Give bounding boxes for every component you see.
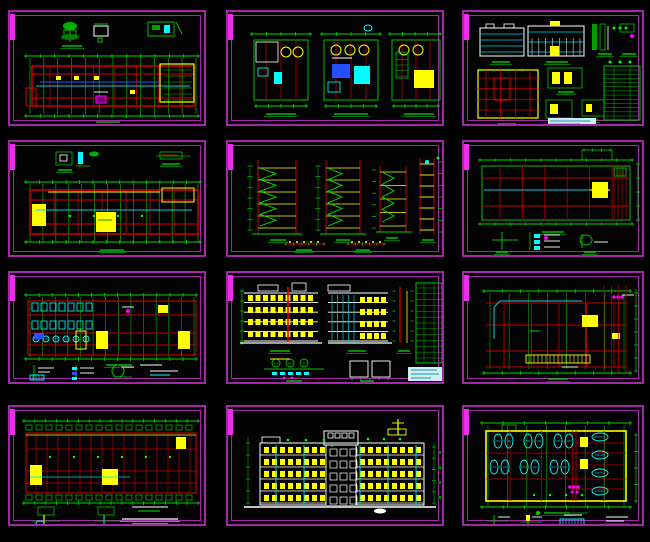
- sheet-drawing-canvas: [464, 142, 642, 255]
- sheet-drawing-canvas: [10, 407, 204, 524]
- sheet-corner-marker: [10, 409, 15, 435]
- sheet-drawing-canvas: [228, 12, 442, 124]
- drawing-sheet-side-elevations-and-schedule[interactable]: [226, 271, 444, 384]
- drawing-sheet-long-floor-plan-a[interactable]: [8, 10, 206, 126]
- sheet-drawing-canvas: [464, 407, 642, 524]
- sheet-corner-marker: [10, 144, 15, 170]
- sheet-drawing-canvas: [464, 12, 642, 124]
- drawing-sheet-roof-plan-and-details[interactable]: [462, 140, 644, 257]
- drawing-sheet-entrance-elevations-and-details[interactable]: [462, 10, 644, 126]
- sheet-drawing-canvas: [228, 142, 442, 255]
- sheet-drawing-canvas: [10, 12, 204, 124]
- sheet-corner-marker: [464, 14, 469, 40]
- sheet-corner-marker: [228, 144, 233, 170]
- sheet-corner-marker: [228, 275, 233, 301]
- sheet-drawing-canvas: [228, 273, 442, 382]
- drawing-sheet-dormitory-floor-plan[interactable]: [8, 271, 206, 384]
- sheet-drawing-canvas: [10, 142, 204, 255]
- sheet-drawing-canvas: [228, 407, 442, 524]
- sheet-corner-marker: [464, 275, 469, 301]
- sheet-corner-marker: [464, 409, 469, 435]
- sheet-drawing-canvas: [464, 273, 642, 382]
- drawing-sheet-upper-floor-plan[interactable]: [462, 271, 644, 384]
- drawing-sheet-garage-plan[interactable]: [462, 405, 644, 526]
- sheet-corner-marker: [228, 409, 233, 435]
- drawing-sheet-stair-sections[interactable]: [226, 140, 444, 257]
- sheet-drawing-canvas: [10, 273, 204, 382]
- drawing-sheet-ground-floor-plan[interactable]: [8, 405, 206, 526]
- sheet-corner-marker: [10, 275, 15, 301]
- drawing-sheet-enlarged-unit-plans[interactable]: [226, 10, 444, 126]
- cad-sheet-collage: [0, 0, 650, 542]
- sheet-corner-marker: [228, 14, 233, 40]
- sheet-corner-marker: [464, 144, 469, 170]
- drawing-sheet-front-elevation[interactable]: [226, 405, 444, 526]
- drawing-sheet-long-floor-plan-b[interactable]: [8, 140, 206, 257]
- sheet-corner-marker: [10, 14, 15, 40]
